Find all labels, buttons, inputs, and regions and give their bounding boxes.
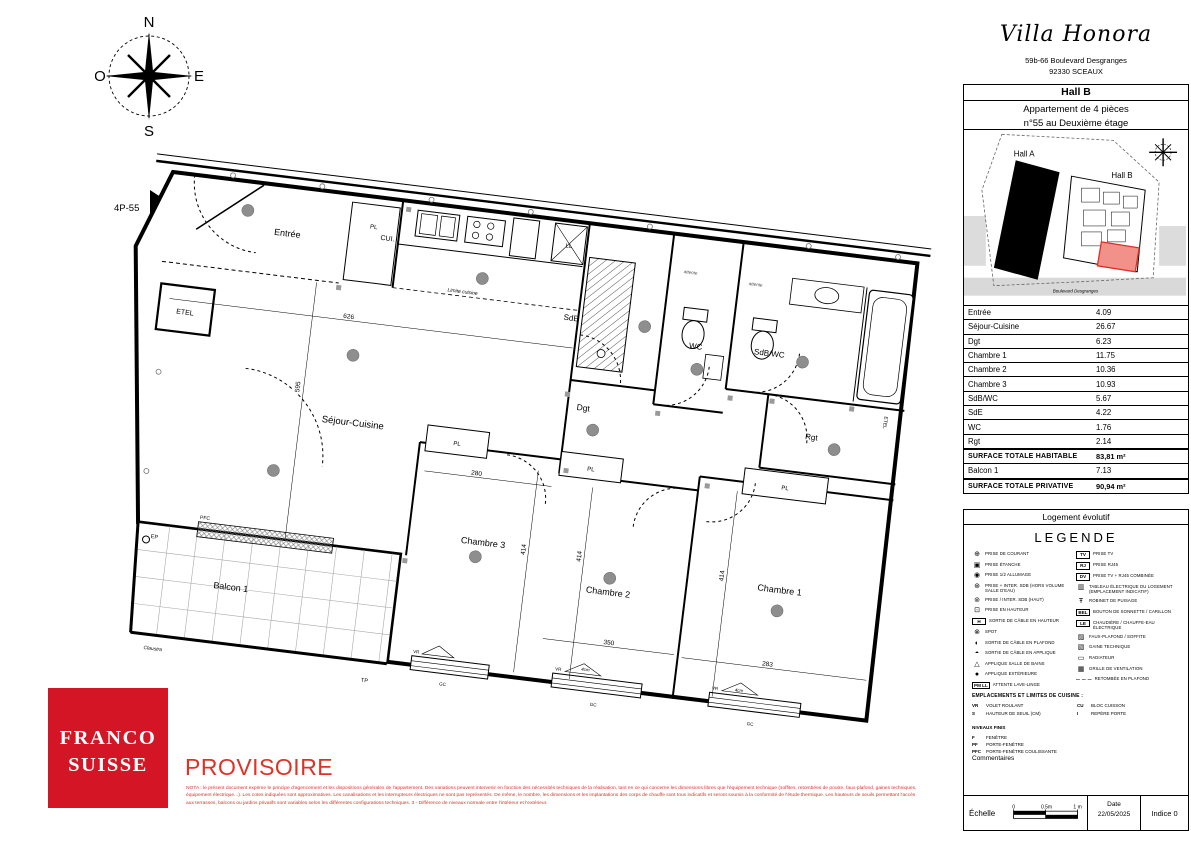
legend-item-label: Attente lave-linge [993,682,1040,687]
legend-item-label: Prise / inter. SdB (haut) [985,597,1044,602]
legend-item: RJ Prise RJ45 [1076,562,1182,570]
street-label: Boulevard Desgranges [1053,289,1099,294]
closet-label: PL [370,224,379,231]
kitchen-section-header: EMPLACEMENTS ET LIMITES DE CUISINE : [972,693,1182,699]
closet-label: PL [781,486,790,493]
legend-item-label: Faux-plafond / soffite [1089,634,1146,639]
area-value: 90,94 m² [1096,482,1188,491]
legend-item: ⊚ Prise / inter. SdB (haut) [972,597,1072,604]
hall-a-building [994,160,1060,279]
area-row: Chambre 1 11.75 [964,349,1188,363]
area-room-label: Balcon 1 [968,466,1096,475]
scale-bar: 0 0.5m 1 m [999,801,1087,825]
legend-item-label: Applique salle de bains [985,661,1045,666]
dim-626: 626 [343,313,355,321]
site-plan-box: Hall A Hall B Boulevard Desgranges [963,129,1189,307]
mini-compass-icon [1149,138,1177,166]
legend-item-label: Prise + inter. SdB (hors volume salle d'… [985,583,1072,593]
area-value: 83,81 m² [1096,452,1188,461]
cooktop [465,216,506,246]
legend-item-label: Prise de courant [985,551,1029,556]
legend-item-label: Tableau électrique du logement (emplacem… [1089,584,1182,594]
commanded-socket-icon: ⊚ [972,597,982,604]
area-room-label: SURFACE TOTALE PRIVATIVE [968,483,1096,490]
area-room-label: Chambre 2 [968,365,1096,374]
pfc-label: PFC [200,515,211,522]
legend-item-label: Prise RJ45 [1093,562,1118,567]
area-room-label: Séjour-Cuisine [968,322,1096,331]
nota-text: NOTA : le présent document exprime le pr… [186,785,923,807]
date-label: Date [1088,800,1140,810]
legend-item-label: Prise 1/2 allumage [985,572,1031,577]
legend-box: LEGENDE ⊕ Prise de courant ▣ Prise étanc… [963,524,1189,796]
dim-350: 350 [603,639,615,647]
area-room-label: SURFACE TOTALE HABITABLE [968,453,1096,460]
area-value: 6.23 [1096,337,1188,346]
floor-plan: 4P-55 [86,132,966,752]
dim-414: 414 [576,550,584,562]
electrical-panel-icon: ▥ [1076,584,1086,591]
title-block: Échelle 0 0.5m 1 m Date 22/05/2025 Indic… [963,795,1189,831]
legend-item-label: Spot [985,629,997,634]
tp-label: TP [361,678,369,685]
legend-item: DV Prise TV + RJ45 combinée [1076,573,1182,581]
half-switch-socket-icon: ◉ [972,572,982,579]
closet-label: PL [453,441,462,448]
cable-outlet-high-icon: H [972,618,986,626]
dim-280: 280 [471,470,483,478]
area-value: 5.67 [1096,394,1188,403]
claustra-label: Claustra [143,645,162,653]
scale-tick-05: 0.5m [1041,804,1052,810]
legend-item-label: Radiateur [1089,655,1114,660]
legend-item: ▥ Tableau électrique du logement (emplac… [1076,584,1182,594]
kitchen-abbreviations: VRVolet roulant CUBloc cuisson SHauteur … [972,703,1182,716]
hall-label: Hall B [964,85,1188,101]
room-label-wc: WC [688,341,703,352]
dim-414: 414 [718,570,726,582]
gc-label: GC [590,702,598,708]
levels-header: NIVEAUX FINIS [972,725,1182,730]
legend-item: ▭ Radiateur [1076,655,1182,662]
legend-item-label: Sortie de câble en hauteur [989,618,1059,623]
room-label-dgt: Dgt [576,402,591,414]
area-room-label: Chambre 3 [968,380,1096,389]
washbasin [703,354,724,380]
address: 59b-66 Boulevard Desgranges 92330 SCEAUX [963,56,1189,78]
rainwater-pipe-icon [142,536,150,544]
legend-item: ● Applique extérieure [972,671,1072,678]
legend-item: ▨ Faux-plafond / soffite [1076,634,1182,641]
legend-item-label: Prise TV + RJ45 combinée [1093,573,1154,578]
legend-item: ▣ Prise étanche [972,562,1072,569]
dim-595: 595 [294,381,302,393]
legend-item: BEL Bouton de sonnette / carillon [1076,609,1182,617]
area-room-label: Chambre 1 [968,351,1096,360]
scale-cell: Échelle 0 0.5m 1 m [964,796,1088,830]
legend-item: LE Chaudière / chauffe-eau électrique [1076,620,1182,630]
area-row: Chambre 2 10.36 [964,363,1188,377]
scale-label: Échelle [969,809,995,818]
ceiling-cable-outlet-icon: ◐ [972,640,982,647]
sealed-socket-icon: ▣ [972,562,982,569]
comments-label: Commentaires [972,755,1182,762]
legend-item: Ŧ Robinet de puisage [1076,598,1182,605]
tv-rj45-socket-icon: DV [1076,573,1090,581]
provisional-stamp: PROVISOIRE [185,754,333,781]
legend-item-label: Sortie de câble en plafond [985,640,1055,645]
legend-item-label: Bouton de sonnette / carillon [1093,609,1171,614]
tv-socket-icon: TV [1076,551,1090,559]
legend-item: ▧ Gaine technique [1076,644,1182,651]
spot-icon: ⊗ [972,629,982,636]
unit-ref-label: 4P-55 [114,203,139,214]
abbreviation-row: PFPorte-fenêtre [972,742,1182,747]
area-value: 4.09 [1096,308,1188,317]
area-row: SURFACE TOTALE HABITABLE 83,81 m² [964,449,1188,464]
dim-414: 414 [520,543,528,555]
site-hall-b-label: Hall B [1111,171,1132,180]
area-row: SdB/WC 5.67 [964,392,1188,406]
room-label-rgt: Rgt [805,432,819,443]
compass-n: N [144,14,155,31]
highlighted-apartment [1097,242,1139,272]
seuil-label: 4cm [581,666,590,672]
area-value: 4.22 [1096,408,1188,417]
legend-item: ◓ Sortie de câble en applique [972,650,1072,657]
legend-title: LEGENDE [964,530,1188,545]
legend-item: TV Prise TV [1076,551,1182,559]
legend-item: ⊡ Prise en hauteur [972,607,1072,614]
area-room-label: SdB/WC [968,394,1096,403]
area-row: Dgt 6.23 [964,335,1188,349]
legend-item-label: Chaudière / chauffe-eau électrique [1093,620,1182,630]
room-label-sde: SdE [563,313,579,324]
legend-item: – – – Retombée en plafond [1076,676,1182,683]
logo-line2: SUISSE [48,752,168,779]
area-room-label: Rgt [968,437,1096,446]
high-socket-icon: ⊡ [972,607,982,614]
legend-item: ⊗ Spot [972,629,1072,636]
seuil-label: 4cm [735,687,744,693]
abbreviation-row: PFCPorte-fenêtre coulissante [972,749,1182,754]
compass-e: E [194,68,204,85]
franco-suisse-logo: FRANCO SUISSE [48,688,168,808]
site-plan: Hall A Hall B Boulevard Desgranges [964,130,1186,304]
legend-item-label: Prise TV [1093,551,1113,556]
duct-icon: ▧ [1076,644,1086,651]
area-row: Balcon 1 7.13 [964,464,1188,478]
area-row: SURFACE TOTALE PRIVATIVE 90,94 m² [964,479,1188,493]
legend-column-left: ⊕ Prise de courant ▣ Prise étanche ◉ Pri… [972,551,1072,693]
beam-drop-icon: – – – [1076,676,1092,683]
socket-icon: ⊕ [972,551,982,558]
area-room-label: Entrée [968,308,1096,317]
vent-grille-icon: ▦ [1076,666,1086,673]
dim-283: 283 [762,660,774,668]
false-ceiling-icon: ▨ [1076,634,1086,641]
address-line1: 59b-66 Boulevard Desgranges [963,56,1189,67]
brand-title: Villa Honora [963,22,1189,47]
legend-item: ▦ Grille de ventilation [1076,666,1182,673]
abbreviation-row: SHauteur de seuil (cm) [972,711,1077,716]
area-row: Entrée 4.09 [964,306,1188,320]
area-value: 11.75 [1096,351,1188,360]
legend-item: △ Applique salle de bains [972,661,1072,668]
legend-item: PM LL Attente lave-linge [972,682,1072,690]
gc-label: GC [439,681,447,687]
site-hall-a-label: Hall A [1014,149,1035,158]
gc-label: GC [746,721,754,727]
compass-rose: N S E O [95,14,207,138]
area-row: SdE 4.22 [964,406,1188,420]
socket-switch-icon: ⊛ [972,583,982,590]
fridge [509,218,539,259]
area-room-label: WC [968,423,1096,432]
address-line2: 92330 SCEAUX [963,67,1189,78]
abbreviation-row: FFenêtre [972,735,1182,740]
area-row: Séjour-Cuisine 26.67 [964,320,1188,334]
abbreviation-row: CUBloc cuisson [1077,703,1182,708]
area-value: 7.13 [1096,466,1188,475]
abbreviation-row: VRVolet roulant [972,703,1077,708]
area-value: 26.67 [1096,322,1188,331]
area-value: 10.93 [1096,380,1188,389]
ep-label: EP [150,534,158,541]
radiator-icon: ▭ [1076,655,1086,662]
area-row: Chambre 3 10.93 [964,377,1188,391]
legend-item-label: Sortie de câble en applique [985,650,1056,655]
closet-label: PL [587,467,596,474]
tap-icon: Ŧ [1076,598,1086,605]
legend-item-label: Retombée en plafond [1095,676,1150,681]
area-room-label: Dgt [968,337,1096,346]
doorbell-icon: BEL [1076,609,1090,617]
area-row: Rgt 2.14 [964,435,1188,449]
date-cell: Date 22/05/2025 [1088,796,1141,830]
logo-line1: FRANCO [48,725,168,752]
water-heater-icon: LE [1076,620,1090,628]
legend-item: ◐ Sortie de câble en plafond [972,640,1072,647]
area-value: 10.36 [1096,365,1188,374]
washing-machine-outlet-icon: PM LL [972,682,990,690]
abbreviation-row: IRepère porte [1077,711,1182,716]
legend-item-label: Grille de ventilation [1089,666,1143,671]
wall-cable-outlet-icon: ◓ [972,650,982,657]
legend-item-label: Prise en hauteur [985,607,1029,612]
legend-item: ◉ Prise 1/2 allumage [972,572,1072,579]
area-row: WC 1.76 [964,420,1188,434]
legend-item: ⊕ Prise de courant [972,551,1072,558]
legend-item-label: Gaine technique [1089,644,1130,649]
legend-column-right: TV Prise TV RJ Prise RJ45 DV Prise TV + … [1076,551,1182,687]
openings-abbreviations: FFenêtre PFPorte-fenêtre PFCPorte-fenêtr… [972,735,1182,757]
hall-box: Hall B Appartement de 4 pièces n°55 au D… [963,84,1189,135]
date-value: 22/05/2025 [1088,810,1140,820]
legend-item-label: Applique extérieure [985,671,1037,676]
area-value: 2.14 [1096,437,1188,446]
legend-item-label: Robinet de puisage [1089,598,1137,603]
outdoor-wall-light-icon: ● [972,671,982,678]
legend-item-label: Prise étanche [985,562,1021,567]
legend-box-title: Logement évolutif [963,509,1189,525]
area-value: 1.76 [1096,423,1188,432]
compass-o: O [95,68,106,85]
legend-item: ⊛ Prise + inter. SdB (hors volume salle … [972,583,1072,593]
apartment-line1: Appartement de 4 pièces [964,103,1188,117]
rj45-socket-icon: RJ [1076,562,1090,570]
indice-cell: Indice 0 [1141,796,1188,830]
area-room-label: SdE [968,408,1096,417]
bathroom-wall-light-icon: △ [972,661,982,668]
areas-table: Entrée 4.09 Séjour-Cuisine 26.67 Dgt 6.2… [963,305,1189,494]
legend-item: H Sortie de câble en hauteur [972,618,1072,626]
